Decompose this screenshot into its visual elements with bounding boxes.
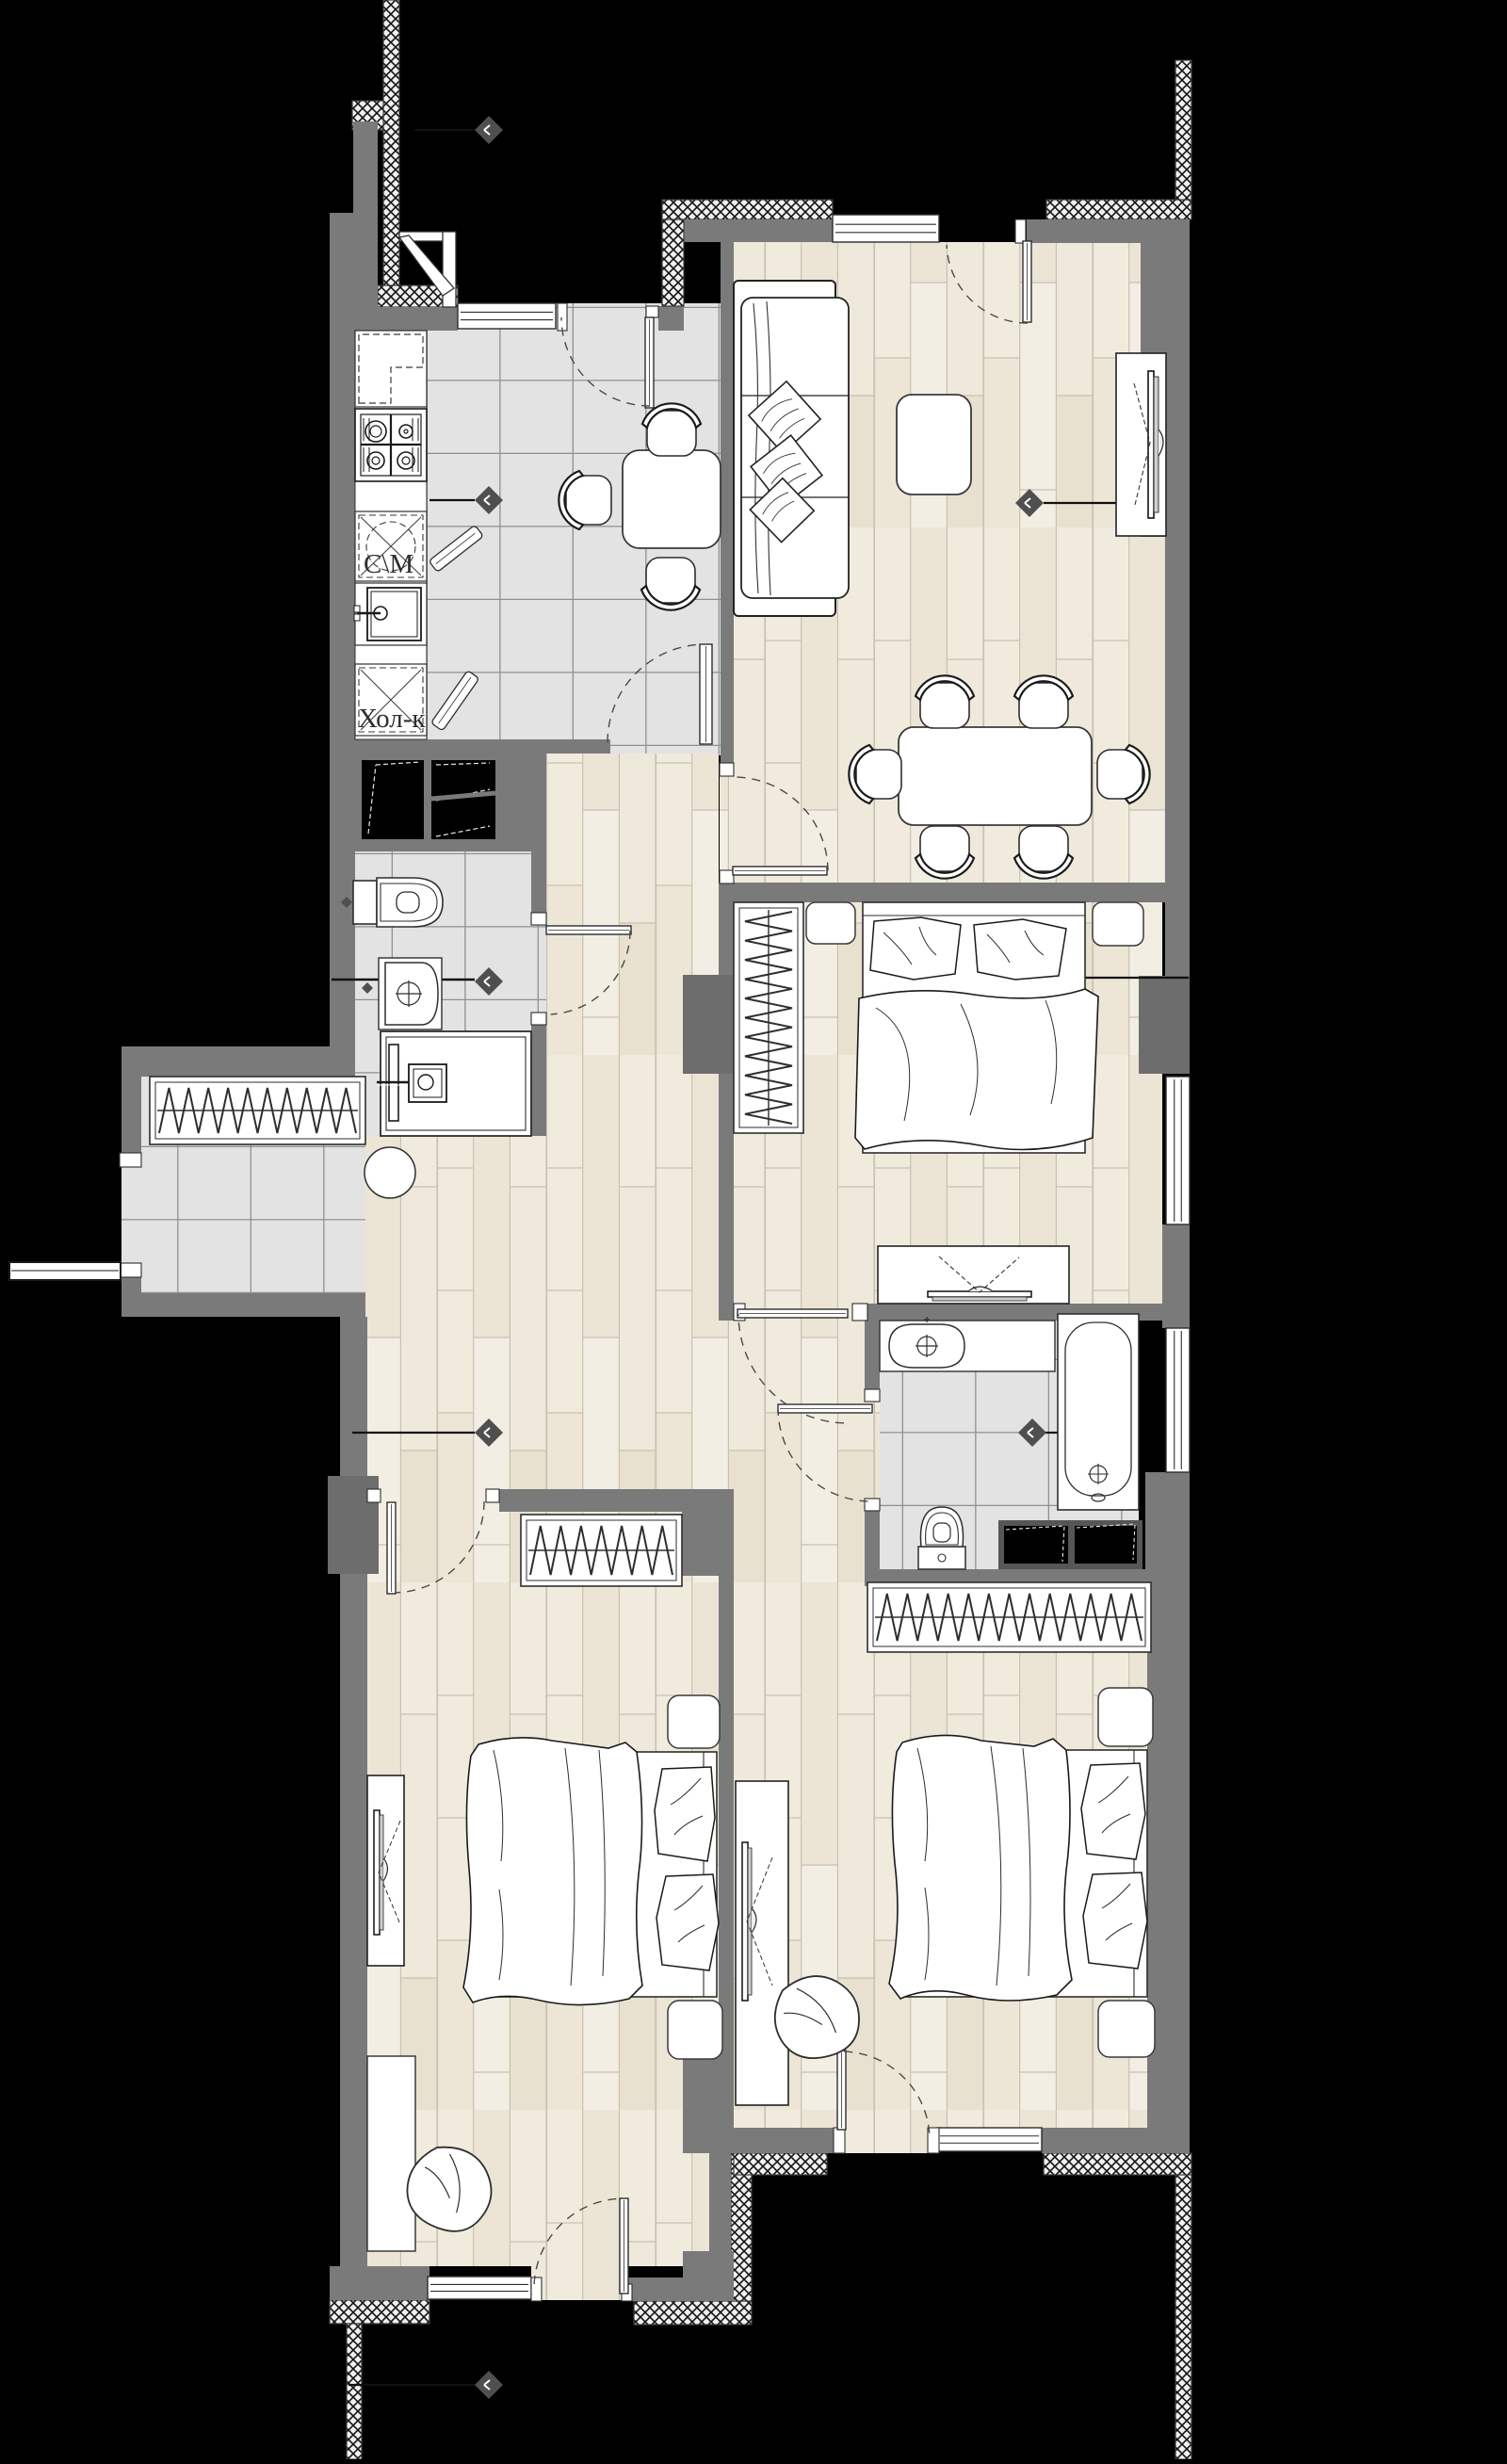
svg-text:Хол-к: Хол-к bbox=[358, 704, 426, 734]
svg-text:С\М: С\М bbox=[364, 549, 413, 579]
